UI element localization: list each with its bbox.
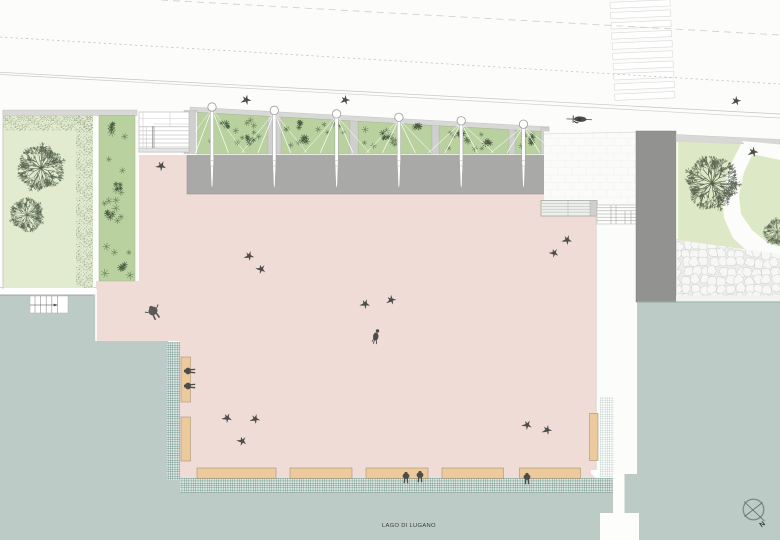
- svg-text:LAGO DI LUGANO: LAGO DI LUGANO: [382, 523, 436, 529]
